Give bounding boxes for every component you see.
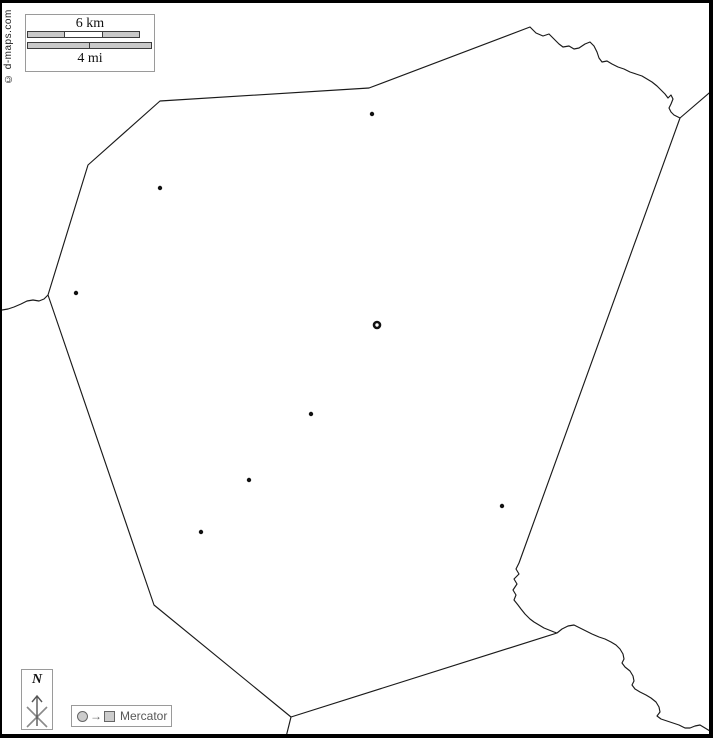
- compass-box: N: [21, 669, 53, 730]
- scale-segment-1: [90, 43, 151, 48]
- city-circle-icon: [77, 711, 88, 722]
- city-dot-4: [247, 478, 251, 482]
- city-dot-0: [370, 112, 374, 116]
- city-dot-5: [199, 530, 203, 534]
- border-southeast-river: [557, 625, 709, 734]
- city-dot-2: [74, 291, 78, 295]
- scale-km-label: 6 km: [26, 16, 154, 32]
- scale-mi-bar: [27, 42, 152, 49]
- border-northeast: [680, 88, 709, 118]
- region-outline: [48, 27, 680, 717]
- scale-mi-label: 4 mi: [26, 51, 154, 67]
- city-dot-6: [500, 504, 504, 508]
- compass-rose-icon: [22, 690, 52, 728]
- square-icon: [104, 711, 115, 722]
- map-canvas: [2, 3, 709, 734]
- map-page: © d-maps.com 6 km 4 mi N → Mercator: [0, 0, 713, 738]
- border-south: [285, 717, 291, 734]
- border-west-wavy: [2, 295, 48, 310]
- city-dot-1: [158, 186, 162, 190]
- scale-segment-1: [65, 32, 102, 37]
- arrow-right-icon: →: [90, 710, 102, 722]
- scale-box: 6 km 4 mi: [25, 14, 155, 72]
- projection-legend-box: → Mercator: [71, 705, 172, 727]
- scale-segment-0: [28, 43, 90, 48]
- scale-segment-0: [28, 32, 65, 37]
- scale-segment-2: [103, 32, 139, 37]
- capital-marker: [374, 322, 380, 328]
- copyright-watermark: © d-maps.com: [3, 9, 14, 85]
- city-dot-3: [309, 412, 313, 416]
- compass-north-label: N: [22, 672, 52, 688]
- scale-km-bar: [27, 31, 140, 38]
- projection-label: Mercator: [120, 709, 167, 723]
